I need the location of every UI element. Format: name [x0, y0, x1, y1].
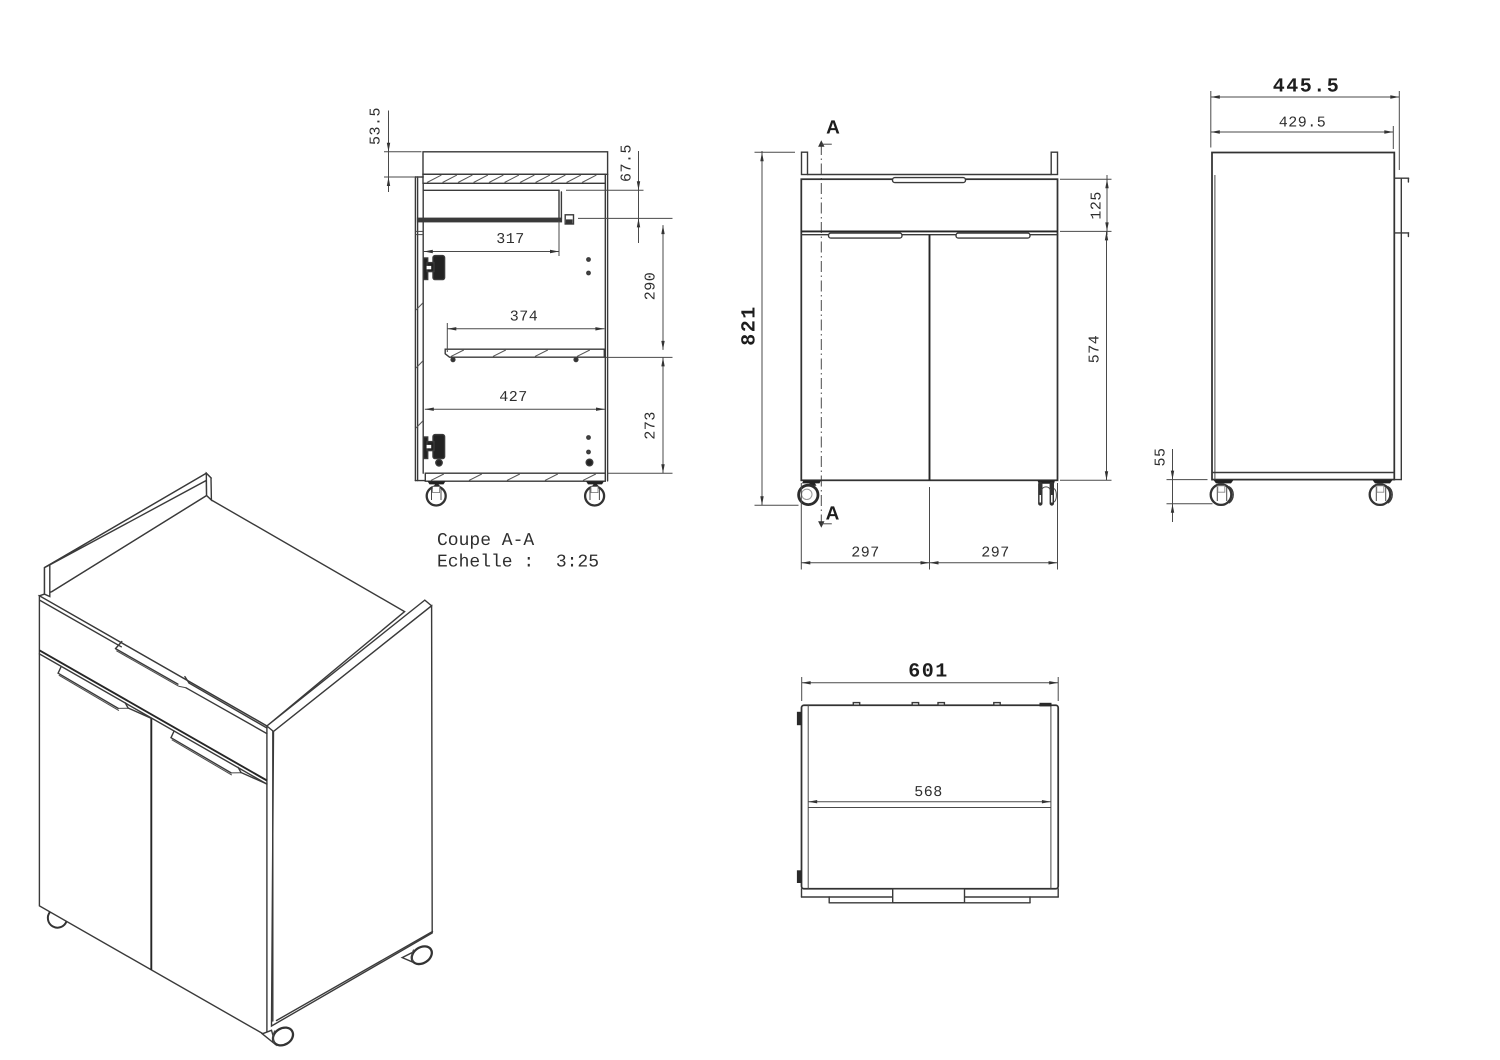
svg-text:574: 574 — [1086, 335, 1103, 364]
svg-text:374: 374 — [510, 309, 539, 326]
svg-text:427: 427 — [499, 389, 528, 406]
svg-text:A: A — [826, 504, 840, 525]
svg-text:67.5: 67.5 — [619, 144, 636, 182]
svg-text:290: 290 — [643, 272, 660, 301]
svg-text:568: 568 — [914, 784, 943, 801]
svg-text:125: 125 — [1089, 191, 1106, 220]
svg-text:Coupe A-A: Coupe A-A — [437, 531, 534, 551]
svg-text:Echelle : 3:25: Echelle : 3:25 — [437, 553, 599, 573]
svg-text:821: 821 — [739, 305, 762, 346]
svg-text:445.5: 445.5 — [1273, 76, 1341, 99]
svg-text:429.5: 429.5 — [1279, 115, 1327, 132]
svg-text:55: 55 — [1152, 447, 1169, 466]
svg-text:297: 297 — [851, 544, 880, 561]
svg-text:53.5: 53.5 — [368, 107, 385, 145]
svg-text:273: 273 — [643, 411, 660, 440]
svg-text:A: A — [826, 118, 840, 139]
svg-text:297: 297 — [981, 544, 1010, 561]
svg-text:601: 601 — [908, 660, 949, 683]
svg-text:317: 317 — [496, 231, 525, 248]
